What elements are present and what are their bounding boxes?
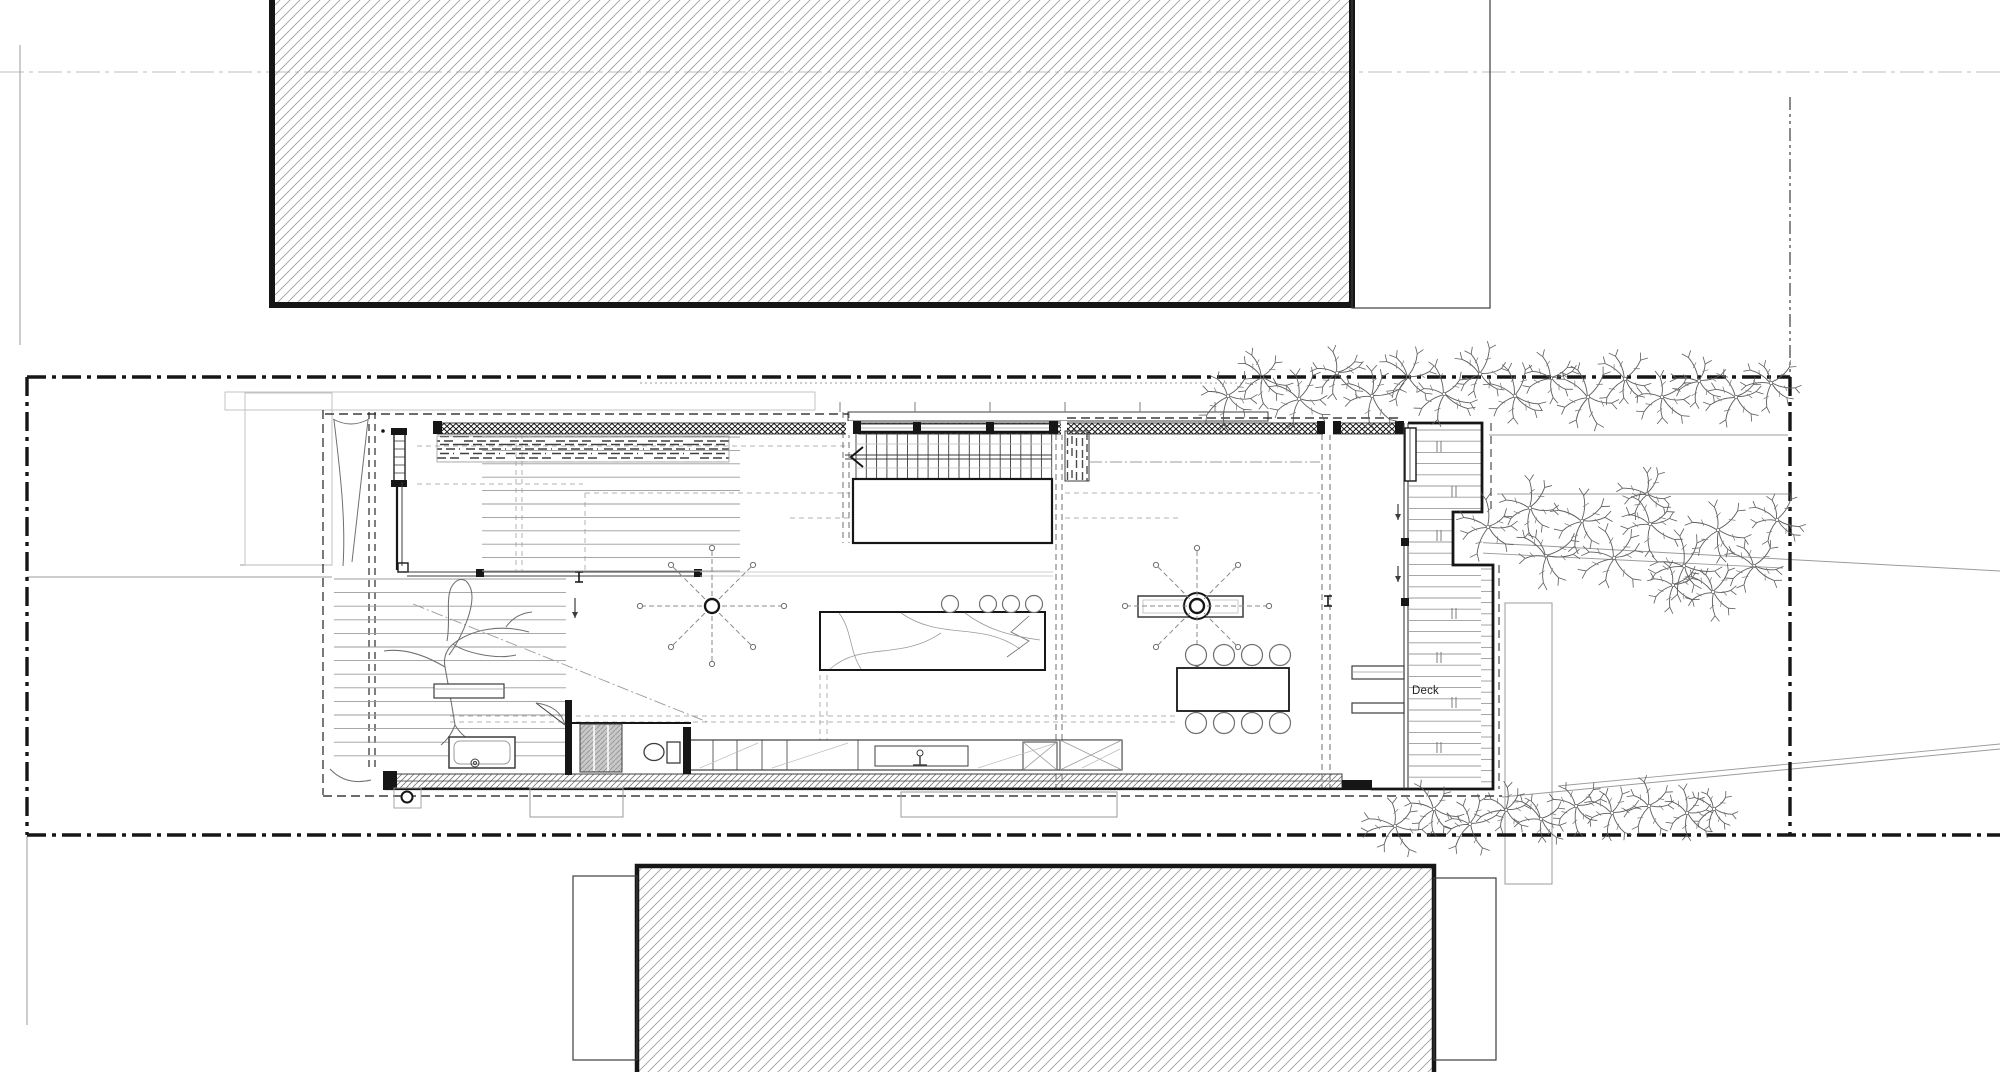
left-courtyard-path bbox=[384, 650, 445, 667]
ceiling-fan-living bbox=[637, 545, 786, 666]
column-marker bbox=[575, 572, 583, 582]
wood-screen bbox=[1065, 431, 1089, 481]
bathroom-rect bbox=[683, 727, 691, 774]
neighbor-building-north bbox=[272, 0, 1352, 305]
dining bbox=[1177, 645, 1291, 734]
left-courtyard-path bbox=[453, 612, 532, 644]
stair-void bbox=[853, 479, 1052, 543]
east-deck-rect bbox=[1401, 598, 1409, 606]
house-walls-rect bbox=[391, 480, 407, 487]
east-deck-arrow bbox=[1395, 504, 1401, 520]
left-courtyard-path bbox=[447, 579, 472, 655]
house-walls-rect bbox=[391, 428, 407, 435]
vegetation-shrub bbox=[1199, 371, 1258, 431]
deck-label: Deck bbox=[1412, 685, 1439, 697]
east-deck-tickpair bbox=[1452, 486, 1456, 497]
pergola-band bbox=[848, 412, 1268, 421]
chair bbox=[1214, 713, 1235, 734]
kitchen bbox=[690, 596, 1122, 771]
bathtub bbox=[449, 737, 515, 768]
vegetation-shrub bbox=[1749, 493, 1806, 548]
left-courtyard-circle bbox=[381, 429, 385, 433]
bathroom-wall bbox=[565, 700, 572, 775]
chair bbox=[1270, 713, 1291, 734]
green-roof-band bbox=[437, 436, 729, 462]
stool bbox=[980, 596, 997, 613]
left-courtyard-path bbox=[330, 769, 371, 782]
house-walls-rect bbox=[383, 771, 397, 790]
site-plan-drawing bbox=[0, 0, 2000, 1072]
site-context-line bbox=[1502, 749, 2000, 797]
house-walls-rect bbox=[398, 563, 408, 572]
house-walls-rect bbox=[1333, 421, 1341, 434]
courtyard-bench bbox=[434, 684, 504, 698]
left-courtyard-path bbox=[453, 644, 516, 657]
vegetation-shrub bbox=[1740, 360, 1801, 413]
interior-dashed-line bbox=[413, 604, 710, 723]
neighbor-building-south bbox=[637, 866, 1434, 1072]
vegetation-shrub bbox=[1499, 474, 1559, 538]
neighbor-annex-south-left bbox=[573, 876, 637, 1060]
dining-table bbox=[1177, 668, 1289, 711]
stool bbox=[1003, 596, 1020, 613]
vegetation-shrub bbox=[1341, 365, 1406, 428]
chair bbox=[1242, 645, 1263, 666]
neighbor-garage-east bbox=[1505, 603, 1552, 884]
stool bbox=[942, 596, 959, 613]
left-courtyard-path bbox=[352, 420, 368, 562]
stair-treads bbox=[856, 433, 1052, 479]
floor-plan-canvas: Deck bbox=[0, 0, 2000, 1072]
reference-outlines-rect bbox=[245, 393, 332, 565]
stair-direction-arrow bbox=[851, 447, 863, 467]
column-marker bbox=[1324, 596, 1332, 606]
chair bbox=[1270, 645, 1291, 666]
vegetation-shrub bbox=[1584, 786, 1641, 841]
east-deck-rect bbox=[1401, 538, 1409, 546]
vegetation-shrub bbox=[1556, 362, 1619, 431]
service-point bbox=[402, 792, 413, 803]
deck-boards bbox=[1409, 430, 1481, 777]
vegetation-shrub bbox=[1444, 794, 1503, 856]
vegetation-shrub bbox=[1310, 345, 1365, 400]
east-deck-planks bbox=[1481, 569, 1492, 782]
deck-door bbox=[1405, 428, 1416, 481]
house-walls-rect bbox=[476, 569, 484, 577]
stair bbox=[845, 432, 1053, 543]
house-walls-rect bbox=[1395, 421, 1404, 434]
chair bbox=[1242, 713, 1263, 734]
south-exterior bbox=[394, 788, 1117, 817]
vegetation-shrub bbox=[1648, 529, 1722, 603]
left-courtyard-path bbox=[334, 420, 344, 566]
vegetation-shrub bbox=[1516, 530, 1580, 590]
neighbor-annex-south-right bbox=[1434, 878, 1496, 1060]
stool bbox=[1026, 596, 1043, 613]
east-deck-rect bbox=[1453, 512, 1483, 565]
entry-step bbox=[530, 788, 623, 817]
vegetation-shrub bbox=[1414, 359, 1478, 427]
neighbor-annex-north bbox=[1352, 0, 1490, 308]
chair bbox=[1186, 713, 1207, 734]
house-walls-rect bbox=[1342, 780, 1372, 790]
house-walls-rect bbox=[1317, 421, 1325, 434]
shower bbox=[580, 724, 622, 772]
vegetation-shrub bbox=[1455, 341, 1509, 398]
vegetation-shrub bbox=[1688, 788, 1738, 832]
vegetation-shrub bbox=[1578, 523, 1644, 588]
chair bbox=[1214, 645, 1235, 666]
east-deck-tickpair bbox=[1437, 441, 1441, 452]
vegetation-shrub bbox=[1622, 775, 1674, 835]
left-courtyard bbox=[330, 419, 583, 782]
west-window bbox=[394, 433, 405, 482]
chair bbox=[1186, 645, 1207, 666]
left-courtyard-path bbox=[333, 419, 369, 424]
left-courtyard-arrow bbox=[572, 598, 578, 618]
east-deck bbox=[1324, 423, 1493, 789]
kitchen-island bbox=[820, 612, 1045, 670]
deck-edge bbox=[1371, 423, 1493, 789]
east-deck-arrow bbox=[1395, 566, 1401, 582]
site-context-line bbox=[1558, 744, 2000, 786]
reference-outlines bbox=[225, 383, 1270, 565]
reference-outlines-rect bbox=[225, 392, 815, 410]
deck-planter bbox=[1352, 703, 1404, 713]
bathroom bbox=[449, 700, 691, 775]
vegetation-shrub bbox=[1550, 488, 1613, 554]
vegetation-shrub bbox=[1361, 797, 1428, 857]
toilet bbox=[644, 744, 664, 761]
bathroom-rect bbox=[667, 742, 680, 763]
house-walls-rect bbox=[433, 421, 442, 434]
vegetation-shrub bbox=[1513, 794, 1567, 844]
deck-planter bbox=[1352, 666, 1404, 679]
east-deck-tickpair bbox=[1437, 530, 1441, 541]
